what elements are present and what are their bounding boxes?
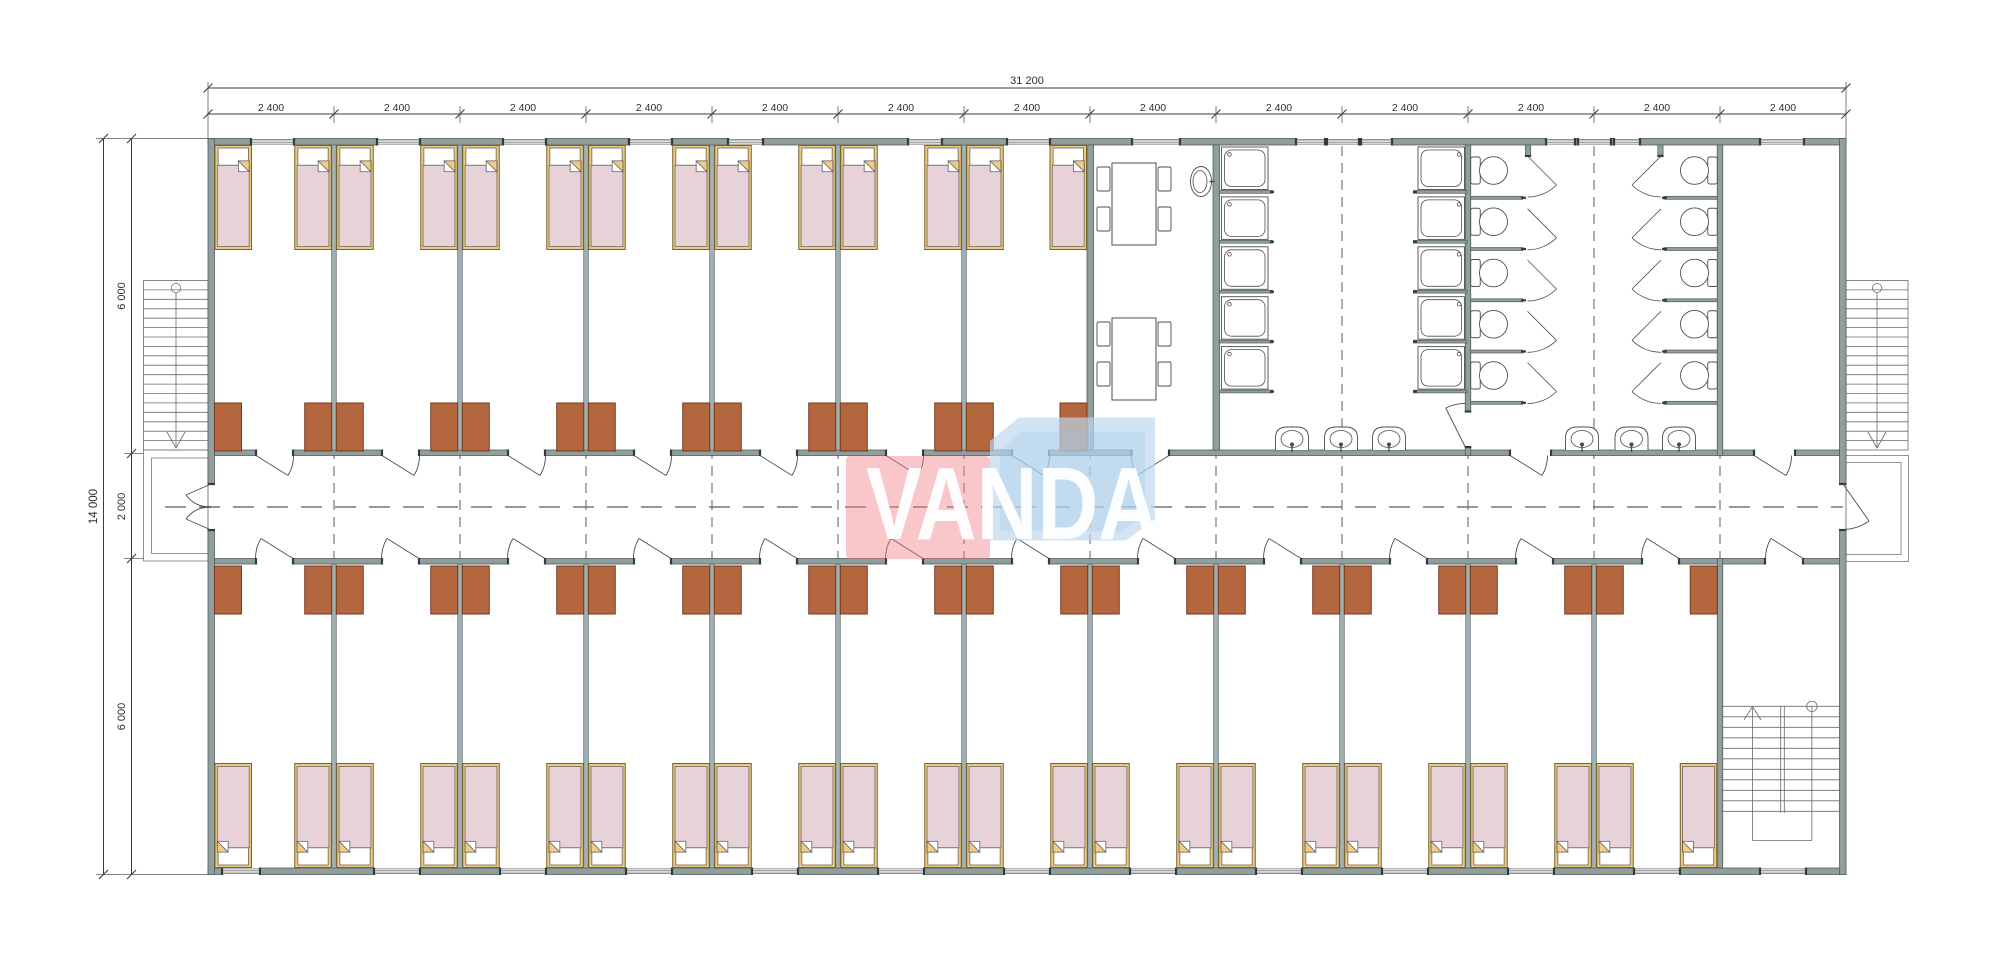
svg-text:14 000: 14 000: [88, 489, 100, 524]
svg-text:6 000: 6 000: [116, 703, 128, 731]
svg-text:2 400: 2 400: [510, 102, 536, 114]
svg-text:2 400: 2 400: [1140, 102, 1166, 114]
svg-text:6 000: 6 000: [116, 282, 128, 310]
svg-text:2 400: 2 400: [1770, 102, 1796, 114]
svg-text:2 400: 2 400: [1014, 102, 1040, 114]
svg-text:2 400: 2 400: [384, 102, 410, 114]
svg-text:2 400: 2 400: [1392, 102, 1418, 114]
svg-text:2 400: 2 400: [1644, 102, 1670, 114]
svg-text:2 400: 2 400: [258, 102, 284, 114]
svg-text:2 400: 2 400: [762, 102, 788, 114]
svg-text:31 200: 31 200: [1010, 75, 1044, 87]
svg-text:2 000: 2 000: [116, 493, 128, 521]
svg-text:2 400: 2 400: [1266, 102, 1292, 114]
svg-text:2 400: 2 400: [636, 102, 662, 114]
svg-text:2 400: 2 400: [888, 102, 914, 114]
svg-text:VANDA: VANDA: [866, 446, 1159, 561]
svg-text:2 400: 2 400: [1518, 102, 1544, 114]
